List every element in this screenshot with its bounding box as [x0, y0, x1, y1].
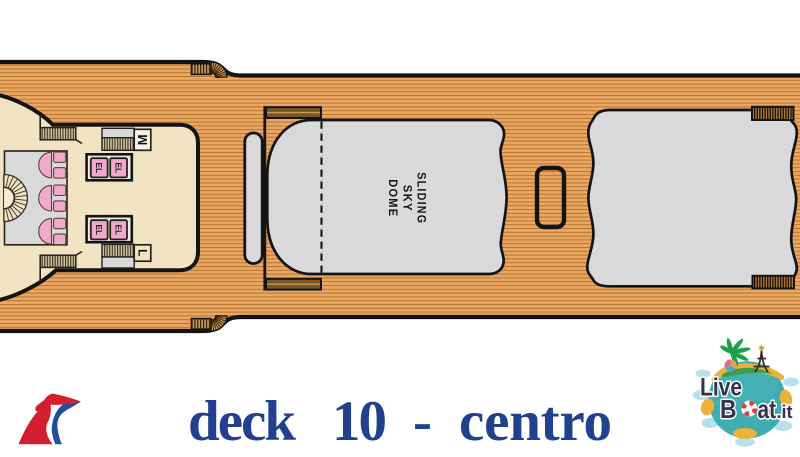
svg-text:EL: EL [94, 162, 104, 173]
svg-text:SLIDING: SLIDING [415, 172, 428, 224]
svg-text:L: L [136, 249, 150, 256]
svg-text:EL: EL [114, 162, 124, 173]
svg-text:B: B [720, 394, 737, 424]
svg-text:deck: deck [188, 390, 296, 453]
svg-text:10: 10 [332, 390, 387, 453]
svg-text:SKY: SKY [400, 185, 413, 212]
svg-text:EL: EL [114, 224, 124, 235]
svg-text:centro: centro [459, 390, 612, 453]
svg-text:M: M [135, 134, 150, 145]
svg-text:EL: EL [94, 224, 104, 235]
svg-text:DOME: DOME [386, 179, 399, 217]
svg-text:-: - [413, 390, 432, 453]
svg-text:at: at [758, 394, 777, 424]
svg-text:.it: .it [777, 402, 793, 422]
